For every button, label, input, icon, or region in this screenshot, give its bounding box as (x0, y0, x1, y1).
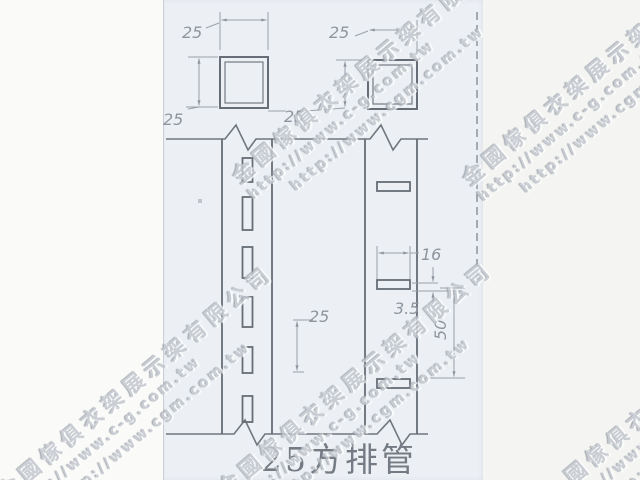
right-square-height-label: 25 (284, 107, 304, 126)
drawing-caption: 25方排管 (261, 440, 417, 479)
right-square-width-label: 25 (329, 23, 349, 42)
slot-length-dimension (377, 246, 419, 279)
slot (243, 297, 253, 327)
front-view-pitch-dimension (293, 320, 313, 372)
slot-thickness-label: 3.5 (394, 299, 419, 318)
left-square-section: 25 25 (163, 12, 268, 129)
right-square-section: 25 25 (268, 20, 417, 126)
scan-speck (198, 199, 202, 203)
left-square-height-label: 25 (163, 110, 183, 129)
slot (243, 247, 253, 278)
slot (243, 158, 253, 182)
technical-drawing: 25 25 25 (0, 0, 640, 480)
front-view-tube (222, 139, 272, 434)
slot (243, 396, 253, 422)
slot (243, 347, 253, 373)
front-view-pitch-label: 25 (309, 307, 329, 326)
side-view-tube (365, 139, 417, 434)
scanned-drawing-page: 25 25 25 (0, 0, 640, 480)
left-square-width-label: 25 (182, 23, 202, 42)
slot (243, 197, 253, 230)
slot (377, 182, 410, 191)
slot-length-label: 16 (421, 245, 441, 264)
slot (377, 280, 410, 289)
slot (377, 379, 410, 388)
slot-spacing-label: 50 (431, 320, 450, 340)
break-lines (166, 125, 428, 445)
